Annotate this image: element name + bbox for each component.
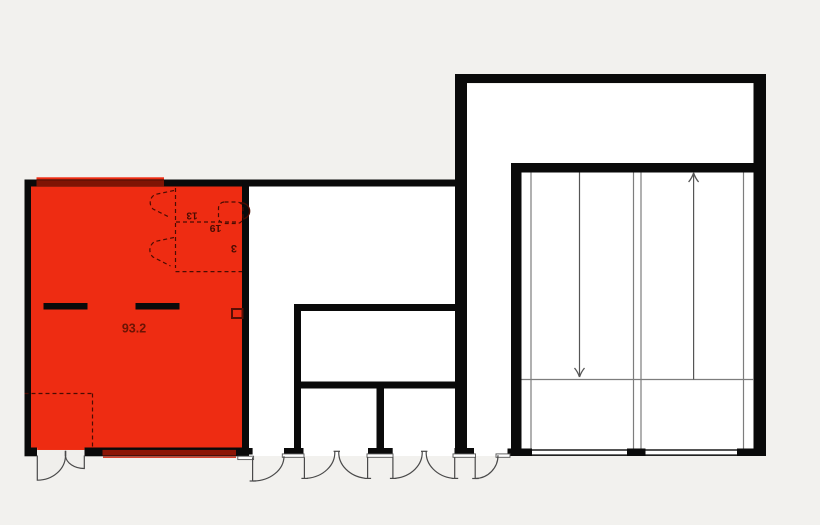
svg-text:13: 13 bbox=[186, 209, 198, 220]
svg-text:93.2: 93.2 bbox=[122, 322, 146, 336]
svg-text:19: 19 bbox=[210, 222, 222, 234]
svg-text:3: 3 bbox=[231, 242, 237, 254]
